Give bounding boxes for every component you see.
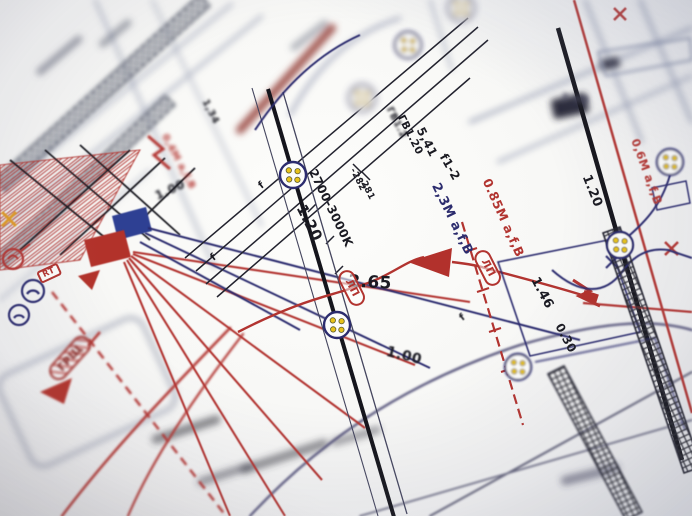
cable-tray-band [548, 227, 692, 516]
red-dashed-feeder [52, 292, 226, 516]
flow-arrow [408, 248, 452, 277]
red-fan-lines [124, 252, 470, 516]
schematic-linework [0, 0, 692, 516]
red-route [238, 248, 600, 332]
flag-arrowhead [40, 332, 100, 404]
blurred-panel-outline [0, 313, 180, 470]
blueprint-photo: 2.651.202700-3000K-282-281ГВ1.2ГВ1.205,4… [0, 0, 692, 516]
